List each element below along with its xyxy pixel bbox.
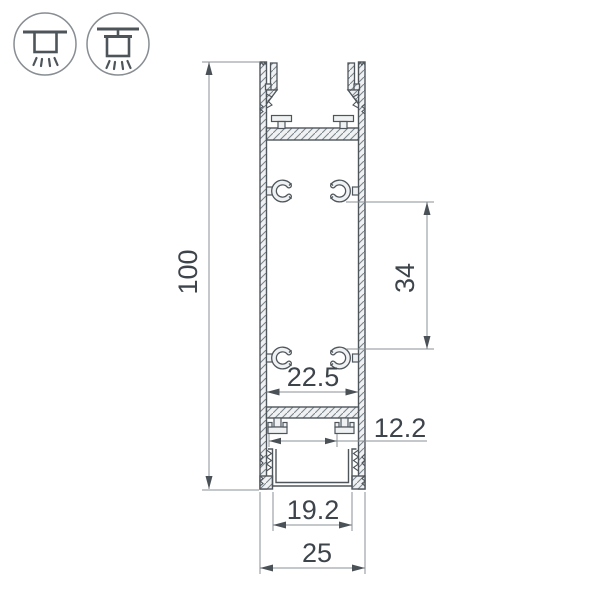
lower-hanging-ribs bbox=[268, 418, 354, 434]
dim-overall-width-value: 25 bbox=[302, 538, 332, 568]
light-rays-icon bbox=[107, 61, 131, 69]
dim-rib-spacing-value: 12.2 bbox=[374, 413, 427, 443]
dim-overall-height: 100 bbox=[173, 62, 259, 490]
dim-bottom-opening-value: 19.2 bbox=[287, 495, 340, 525]
icon-circle bbox=[14, 13, 76, 75]
profile-technical-drawing: 100 34 22.5 12.2 bbox=[0, 0, 600, 600]
profile-cross-section bbox=[260, 62, 365, 489]
dim-inner-width-value: 22.5 bbox=[287, 362, 340, 392]
mount-icons bbox=[14, 13, 149, 75]
screw-bosses bbox=[267, 183, 359, 367]
dim-bottom-opening: 19.2 bbox=[273, 492, 352, 531]
surface-mount-icon bbox=[14, 13, 76, 75]
upper-mounting-ribs bbox=[272, 116, 354, 129]
screw-boss bbox=[267, 183, 292, 200]
icon-circle bbox=[87, 13, 149, 75]
dim-boss-spacing-value: 34 bbox=[390, 263, 420, 293]
bottom-tray bbox=[268, 449, 357, 486]
dim-overall-height-value: 100 bbox=[173, 249, 203, 294]
pendant-mount-icon bbox=[87, 13, 149, 75]
diffuser-lips bbox=[266, 63, 360, 104]
technical-drawing-page: 100 34 22.5 12.2 bbox=[0, 0, 600, 600]
screw-boss bbox=[331, 183, 359, 200]
light-rays-icon bbox=[34, 58, 58, 66]
